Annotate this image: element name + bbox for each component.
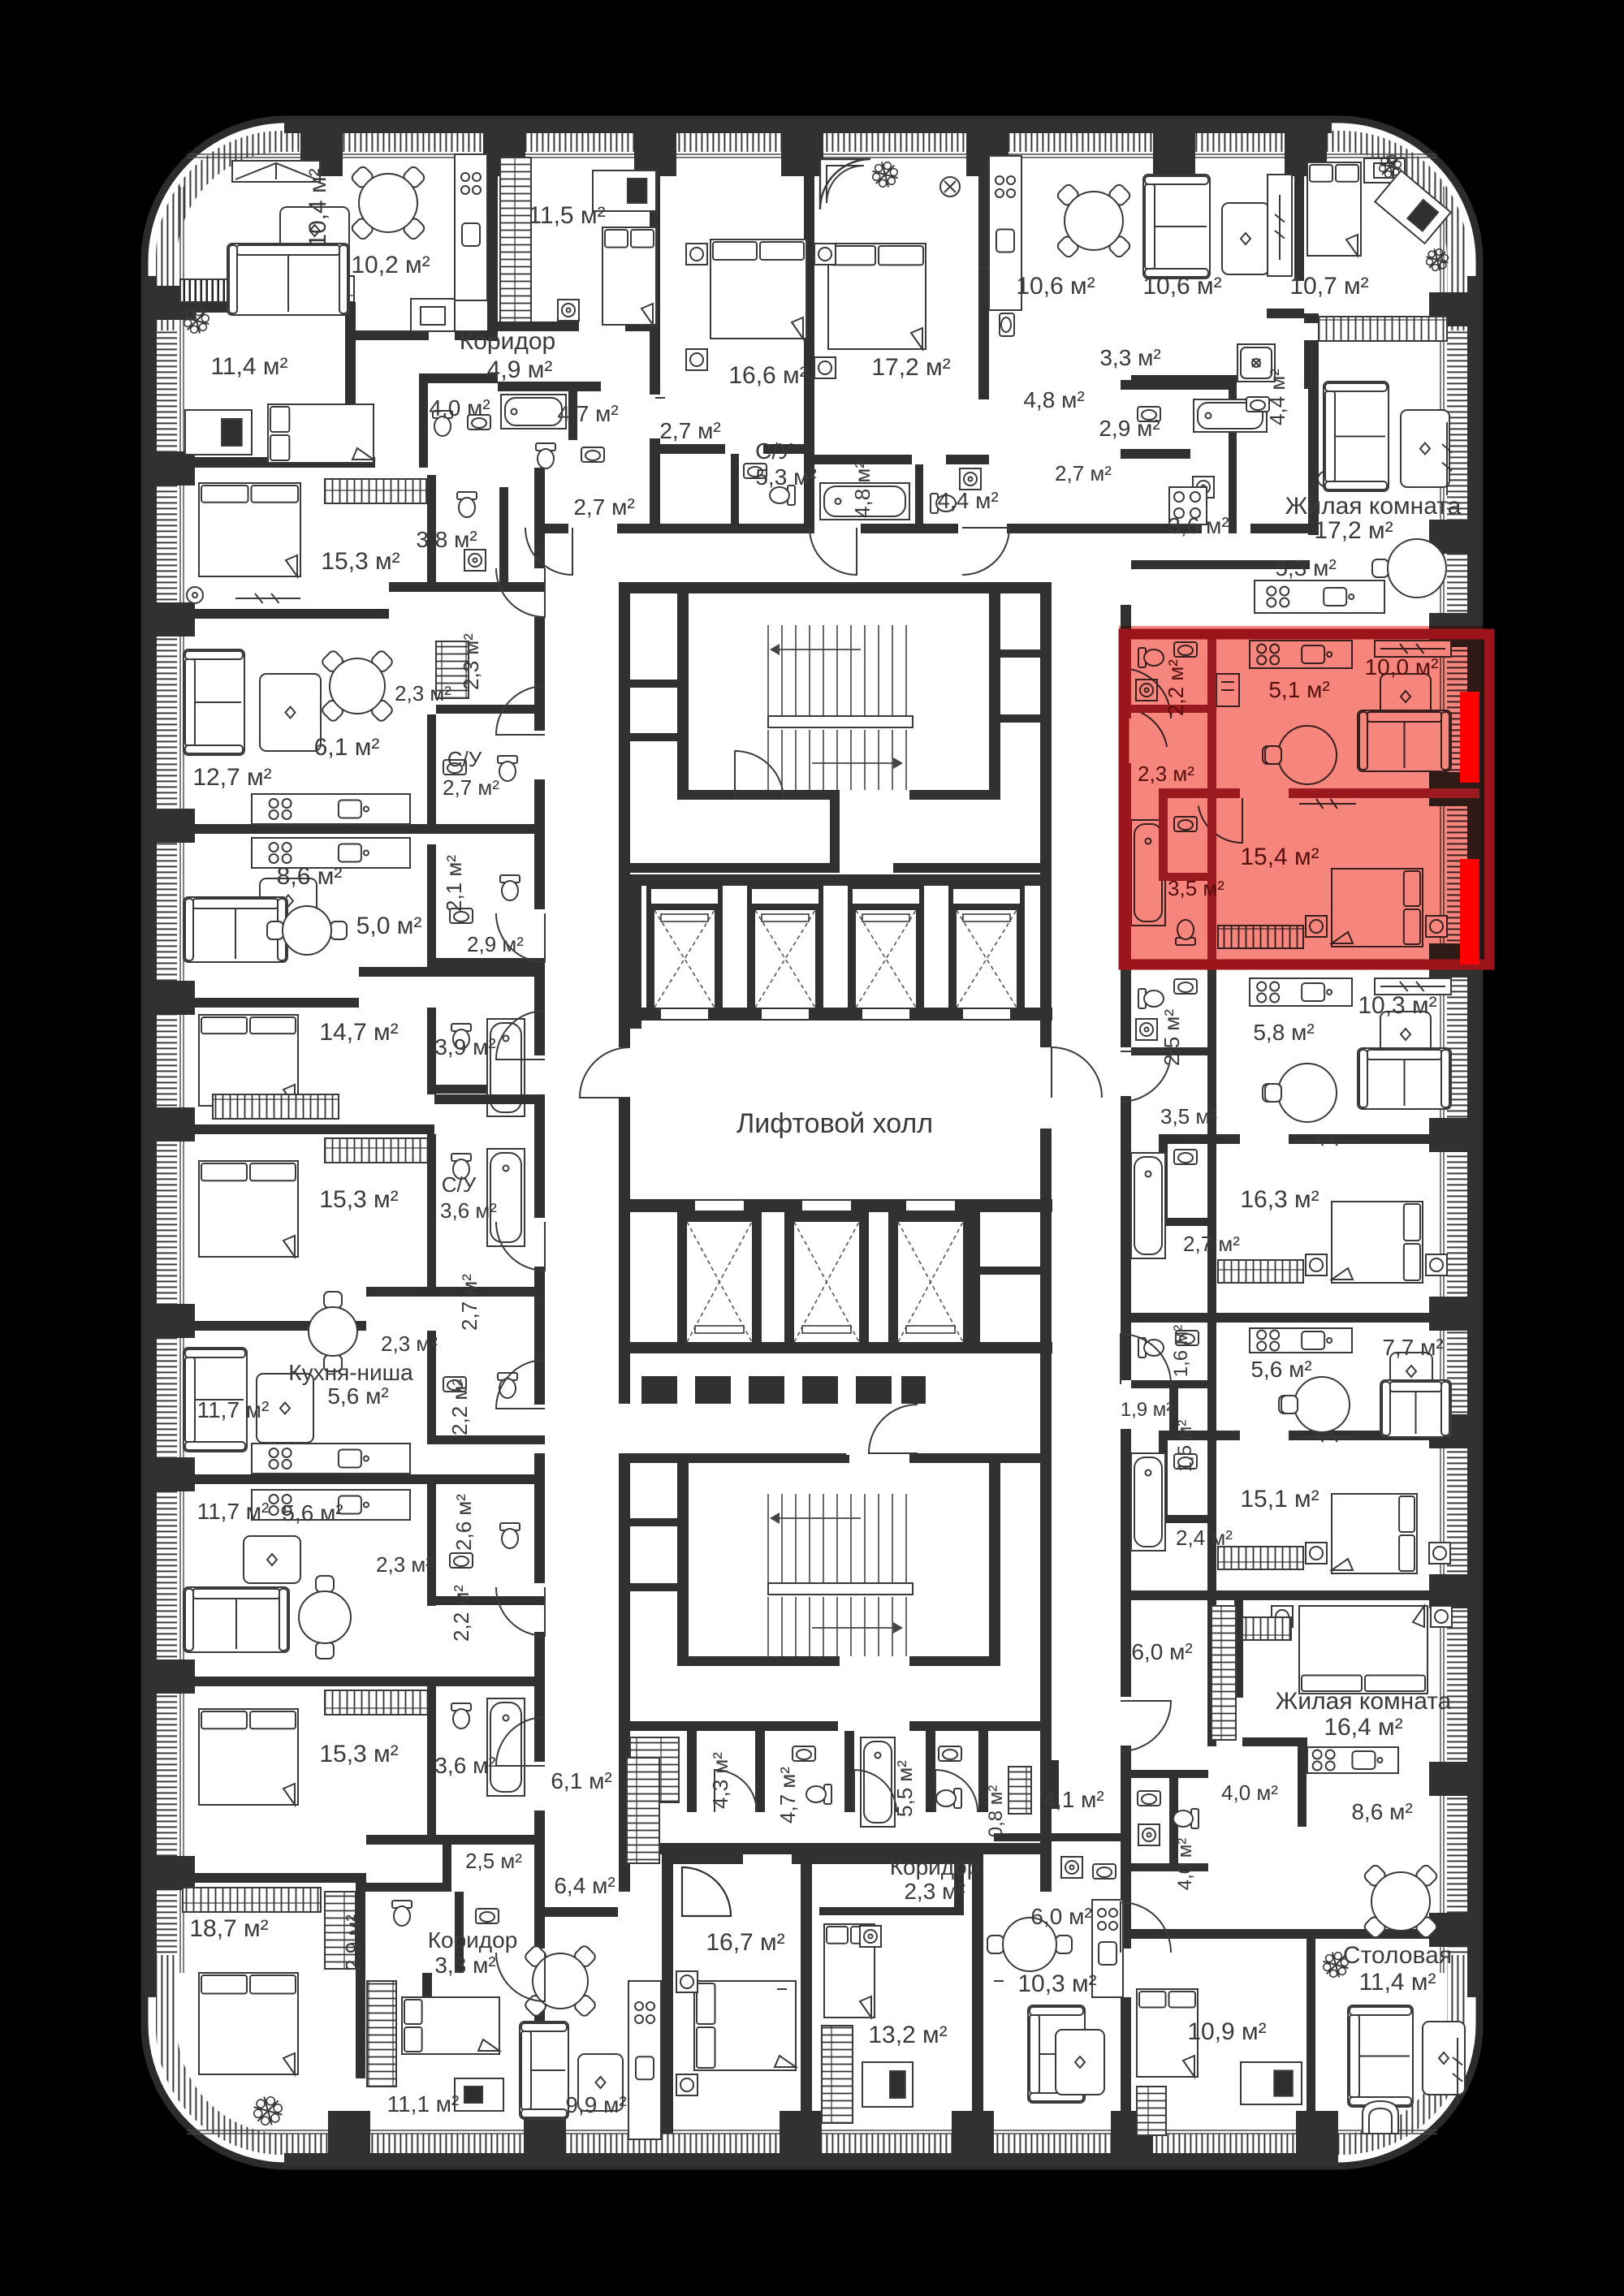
svg-text:16,7 м²: 16,7 м² (706, 1929, 784, 1956)
svg-text:5,6 м²: 5,6 м² (282, 1500, 343, 1526)
svg-text:2,7 м²: 2,7 м² (659, 418, 720, 443)
svg-text:4,7 м²: 4,7 м² (775, 1767, 800, 1823)
svg-text:1,9 м²: 1,9 м² (1121, 1399, 1173, 1421)
svg-text:10,7 м²: 10,7 м² (1289, 273, 1368, 300)
svg-text:1,5 м²: 1,5 м² (1174, 1420, 1196, 1473)
svg-text:2,3 м²: 2,3 м² (904, 1879, 965, 1904)
svg-text:2,3 м²: 2,3 м² (459, 633, 483, 690)
svg-text:3,6 м²: 3,6 м² (434, 1753, 495, 1778)
svg-text:5,6 м²: 5,6 м² (1250, 1357, 1311, 1382)
svg-text:15,1 м²: 15,1 м² (1240, 1486, 1319, 1513)
svg-text:2,7 м²: 2,7 м² (1055, 461, 1112, 486)
svg-text:2,6 м²: 2,6 м² (451, 1494, 476, 1551)
svg-text:16,4 м²: 16,4 м² (1324, 1714, 1402, 1741)
svg-text:5,6 м²: 5,6 м² (327, 1383, 388, 1409)
svg-text:2,3 м²: 2,3 м² (1138, 762, 1194, 786)
svg-text:12,7 м²: 12,7 м² (192, 764, 271, 791)
svg-text:6,1 м²: 6,1 м² (551, 1768, 611, 1793)
svg-text:Коридор: Коридор (428, 1927, 518, 1953)
svg-text:0,8 м²: 0,8 м² (985, 1785, 1007, 1838)
svg-text:9,9 м²: 9,9 м² (565, 2092, 626, 2117)
svg-text:5,3 м²: 5,3 м² (1275, 555, 1336, 580)
svg-text:5,8 м²: 5,8 м² (1253, 1020, 1314, 1045)
svg-text:6,0 м²: 6,0 м² (1030, 1904, 1091, 1929)
svg-text:10,0 м²: 10,0 м² (1365, 654, 1439, 680)
svg-text:11,1 м²: 11,1 м² (387, 2091, 460, 2117)
svg-text:15,3 м²: 15,3 м² (319, 1186, 398, 1213)
svg-text:2,3 м²: 2,3 м² (395, 681, 451, 706)
svg-text:11,4 м²: 11,4 м² (1358, 1969, 1436, 1996)
svg-text:2,4 м²: 2,4 м² (1176, 1526, 1233, 1550)
svg-text:16,6 м²: 16,6 м² (728, 362, 807, 389)
svg-text:2,7 м²: 2,7 м² (573, 494, 634, 520)
svg-text:3,8 м²: 3,8 м² (416, 527, 477, 552)
svg-text:17,2 м²: 17,2 м² (1314, 517, 1393, 544)
svg-text:2,2 м²: 2,2 м² (1164, 659, 1188, 716)
svg-text:2,3 м²: 2,3 м² (381, 1331, 438, 1356)
svg-text:6,0 м²: 6,0 м² (1131, 1639, 1192, 1664)
svg-text:Жилая комната: Жилая комната (1285, 493, 1462, 520)
svg-text:4,0 м²: 4,0 м² (429, 395, 490, 421)
svg-text:14,7 м²: 14,7 м² (319, 1019, 398, 1046)
svg-text:2,2 м²: 2,2 м² (449, 1585, 473, 1642)
svg-text:3,6 м²: 3,6 м² (1168, 513, 1229, 538)
svg-text:11,4 м²: 11,4 м² (210, 353, 287, 380)
svg-text:4,7 м²: 4,7 м² (557, 401, 618, 426)
svg-text:2,9 м²: 2,9 м² (341, 1914, 365, 1971)
svg-text:5,0 м²: 5,0 м² (356, 913, 422, 939)
svg-text:16,3 м²: 16,3 м² (1240, 1186, 1319, 1213)
svg-text:8,6 м²: 8,6 м² (277, 863, 343, 890)
svg-text:Столовая: Столовая (1343, 1942, 1452, 1969)
svg-text:5,3 м²: 5,3 м² (755, 464, 816, 490)
svg-text:7,7 м²: 7,7 м² (1382, 1335, 1443, 1360)
svg-text:4,4 м²: 4,4 м² (937, 488, 998, 513)
svg-text:2,3 м²: 2,3 м² (376, 1552, 433, 1577)
svg-text:8,6 м²: 8,6 м² (1351, 1799, 1412, 1824)
svg-text:4,8 м²: 4,8 м² (1023, 387, 1084, 412)
svg-text:4,3 м²: 4,3 м² (708, 1752, 732, 1809)
svg-text:15,4 м²: 15,4 м² (1240, 844, 1319, 870)
svg-text:10,9 м²: 10,9 м² (1187, 2018, 1266, 2045)
svg-text:3,3 м²: 3,3 м² (434, 1953, 495, 1978)
svg-text:2,2 м²: 2,2 м² (447, 1379, 472, 1435)
svg-text:3,3 м²: 3,3 м² (1099, 345, 1160, 370)
svg-text:11,5 м²: 11,5 м² (528, 202, 605, 229)
svg-text:15,3 м²: 15,3 м² (321, 548, 400, 575)
svg-text:Кухня-ниша: Кухня-ниша (288, 1360, 413, 1385)
svg-text:С/У: С/У (442, 1172, 477, 1197)
svg-text:Коридор: Коридор (460, 328, 555, 355)
svg-text:11,7 м²: 11,7 м² (197, 1397, 270, 1422)
svg-text:С/У: С/У (755, 438, 793, 464)
svg-text:2,9 м²: 2,9 м² (467, 932, 524, 956)
svg-text:4,9 м²: 4,9 м² (487, 356, 553, 383)
svg-text:2,1 м²: 2,1 м² (442, 855, 466, 912)
svg-text:С/У: С/У (447, 747, 482, 771)
svg-text:4,4 м²: 4,4 м² (1265, 369, 1289, 425)
svg-text:2,7 м²: 2,7 м² (443, 775, 499, 800)
svg-text:13,2 м²: 13,2 м² (868, 2022, 947, 2048)
svg-text:3,5 м²: 3,5 м² (1168, 876, 1224, 900)
svg-text:11,7 м²: 11,7 м² (197, 1499, 270, 1524)
svg-text:4,1 м²: 4,1 м² (1043, 1787, 1104, 1812)
svg-text:2,5 м²: 2,5 м² (1160, 1009, 1184, 1066)
svg-text:4,0 м²: 4,0 м² (1174, 1838, 1196, 1891)
svg-text:10,6 м²: 10,6 м² (1016, 273, 1095, 300)
svg-text:15,3 м²: 15,3 м² (319, 1741, 398, 1767)
svg-text:6,1 м²: 6,1 м² (314, 734, 380, 761)
svg-text:3,5 м²: 3,5 м² (1160, 1104, 1217, 1129)
svg-text:4,0 м²: 4,0 м² (1221, 1780, 1278, 1805)
svg-text:10,2 м²: 10,2 м² (351, 252, 430, 278)
svg-text:10,4 м²: 10,4 м² (304, 168, 331, 247)
svg-text:2,5 м²: 2,5 м² (465, 1849, 522, 1873)
svg-text:5,5 м²: 5,5 м² (892, 1760, 917, 1817)
svg-text:3,9 м²: 3,9 м² (434, 1034, 495, 1060)
svg-text:10,3 м²: 10,3 м² (1358, 992, 1436, 1019)
svg-text:3,6 м²: 3,6 м² (440, 1198, 497, 1223)
svg-text:Коридор: Коридор (890, 1854, 980, 1880)
svg-text:17,2 м²: 17,2 м² (871, 354, 950, 381)
svg-text:1,6 м²: 1,6 м² (1170, 1325, 1192, 1378)
svg-text:2,7 м²: 2,7 м² (1183, 1232, 1240, 1256)
svg-text:Лифтовой холл: Лифтовой холл (736, 1108, 933, 1139)
svg-text:5,1 м²: 5,1 м² (1268, 677, 1329, 702)
svg-text:Жилая комната: Жилая комната (1276, 1688, 1452, 1715)
svg-text:2,7 м²: 2,7 м² (457, 1274, 482, 1331)
svg-text:6,4 м²: 6,4 м² (554, 1873, 615, 1898)
svg-text:4,8 м²: 4,8 м² (850, 461, 875, 518)
svg-text:10,3 м²: 10,3 м² (1017, 1970, 1096, 1997)
svg-text:10,6 м²: 10,6 м² (1142, 273, 1221, 300)
svg-text:18,7 м²: 18,7 м² (189, 1915, 268, 1942)
svg-text:2,9 м²: 2,9 м² (1099, 416, 1160, 441)
